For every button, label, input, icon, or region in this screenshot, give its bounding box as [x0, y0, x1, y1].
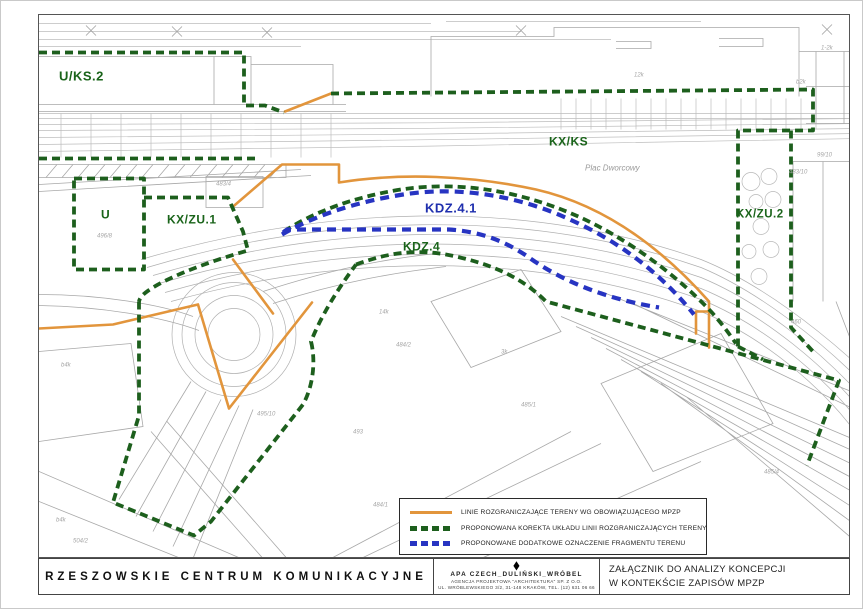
legend-label: LINIE ROZGRANICZAJĄCE TERENY WG OBOWIĄZU…: [461, 509, 681, 516]
firm-address-line: UL. WRÓBLEWSKIEGO 3/2, 31-148 KRAKÓW, TE…: [438, 585, 595, 591]
project-title: RZESZOWSKIE CENTRUM KOMUNIKACYJNE: [45, 571, 427, 583]
parcel-label: b2k: [796, 80, 807, 86]
tree-symbols: [742, 169, 781, 285]
zone-label-uks2: U/KS.2: [59, 69, 104, 84]
proposed-additional-designation-lines: [282, 191, 694, 314]
parcel-label: 484/2: [396, 343, 412, 349]
zone-label-u: U: [101, 208, 110, 222]
parcel-label: 485/4: [764, 470, 780, 476]
parcel-number-labels: 483/4 496/8 12k b2k 1-2k 99/10 483/10 48…: [56, 46, 834, 552]
zone-label-kdz4: KDZ.4: [403, 240, 440, 254]
parcel-label: 483/4: [216, 182, 232, 188]
map-canvas: U/KS.2 U KX/ZU.1 KX/KS KDZ.4.1 KDZ.4 KX/…: [38, 14, 850, 558]
firm-logo-icon: ◆: [513, 561, 519, 570]
parcel-label: b4k: [56, 518, 67, 524]
railway-corridor-curves: [141, 216, 850, 438]
roundabout: [172, 273, 296, 397]
zoning-map: U/KS.2 U KX/ZU.1 KX/KS KDZ.4.1 KDZ.4 KX/…: [39, 15, 850, 558]
mpzp-orange-top-bridge: [285, 94, 331, 112]
green-boundary-kxzu2-east: [791, 131, 813, 352]
legend-label: PROPONOWANA KOREKTA UKŁADU LINII ROZGRAN…: [461, 525, 707, 532]
zone-label-kxzu1: KX/ZU.1: [167, 213, 217, 227]
legend-item-proposed-correction: PROPONOWANA KOREKTA UKŁADU LINII ROZGRAN…: [410, 522, 698, 535]
attachment-title-cell: ZAŁĄCZNIK DO ANALIZY KONCEPCJI W KONTEKŚ…: [600, 559, 849, 594]
legend-item-existing-mpzp: LINIE ROZGRANICZAJĄCE TERENY WG OBOWIĄZU…: [410, 506, 698, 519]
parcel-label: 460: [791, 320, 802, 326]
parcel-label: b4k: [61, 363, 72, 369]
legend-label: PROPONOWANE DODATKOWE OZNACZENIE FRAGMEN…: [461, 540, 685, 547]
parcel-label: 12k: [634, 73, 645, 79]
legend-item-proposed-additional: PROPONOWANE DODATKOWE OZNACZENIE FRAGMEN…: [410, 537, 698, 550]
parcel-label: 1-2k: [821, 46, 834, 52]
parcel-label: 495/10: [257, 412, 276, 418]
green-boundary-u-parcel: [74, 179, 144, 270]
survey-cross-marks: [86, 25, 832, 38]
title-block: RZESZOWSKIE CENTRUM KOMUNIKACYJNE ◆ APA …: [38, 558, 850, 595]
plan-sheet: U/KS.2 U KX/ZU.1 KX/KS KDZ.4.1 KDZ.4 KX/…: [0, 0, 863, 609]
zone-label-kxks: KX/KS: [549, 135, 588, 149]
zone-label-kdz41: KDZ.4.1: [425, 201, 477, 216]
parcel-label: 99/10: [817, 153, 833, 159]
orange-solid-line-swatch: [410, 511, 452, 514]
parcel-label: 484/1: [373, 503, 388, 509]
parcel-label: 504/2: [73, 539, 89, 545]
blue-boundary-upper: [282, 191, 694, 314]
parcel-label: 485/1: [521, 403, 536, 409]
project-title-cell: RZESZOWSKIE CENTRUM KOMUNIKACYJNE: [39, 559, 434, 594]
parcel-label: 493: [353, 430, 364, 436]
parcel-label: 14k: [379, 310, 390, 316]
green-boundary-se-diagonal: [356, 252, 839, 465]
green-dashed-line-swatch: [410, 526, 452, 531]
attachment-title-line1: ZAŁĄCZNIK DO ANALIZY KONCEPCJI: [609, 564, 849, 575]
parcel-label: 483/10: [789, 170, 808, 176]
design-firm-cell: ◆ APA CZECH_DULIŃSKI_WRÓBEL AGENCJA PROJ…: [434, 559, 600, 594]
buildings-and-parcels: [39, 28, 850, 559]
zone-label-kxzu2: KX/ZU.2: [736, 209, 784, 221]
map-legend: LINIE ROZGRANICZAJĄCE TERENY WG OBOWIĄZU…: [399, 498, 707, 555]
attachment-title-line2: W KONTEKŚCIE ZAPISÓW MPZP: [609, 578, 849, 589]
parcel-label: 3k: [501, 350, 508, 356]
blue-dashed-line-swatch: [410, 541, 452, 546]
mpzp-orange-roundabout-edges: [39, 260, 312, 409]
parcel-label: 496/8: [97, 234, 113, 240]
place-name-label: Plac Dworcowy: [585, 164, 641, 173]
